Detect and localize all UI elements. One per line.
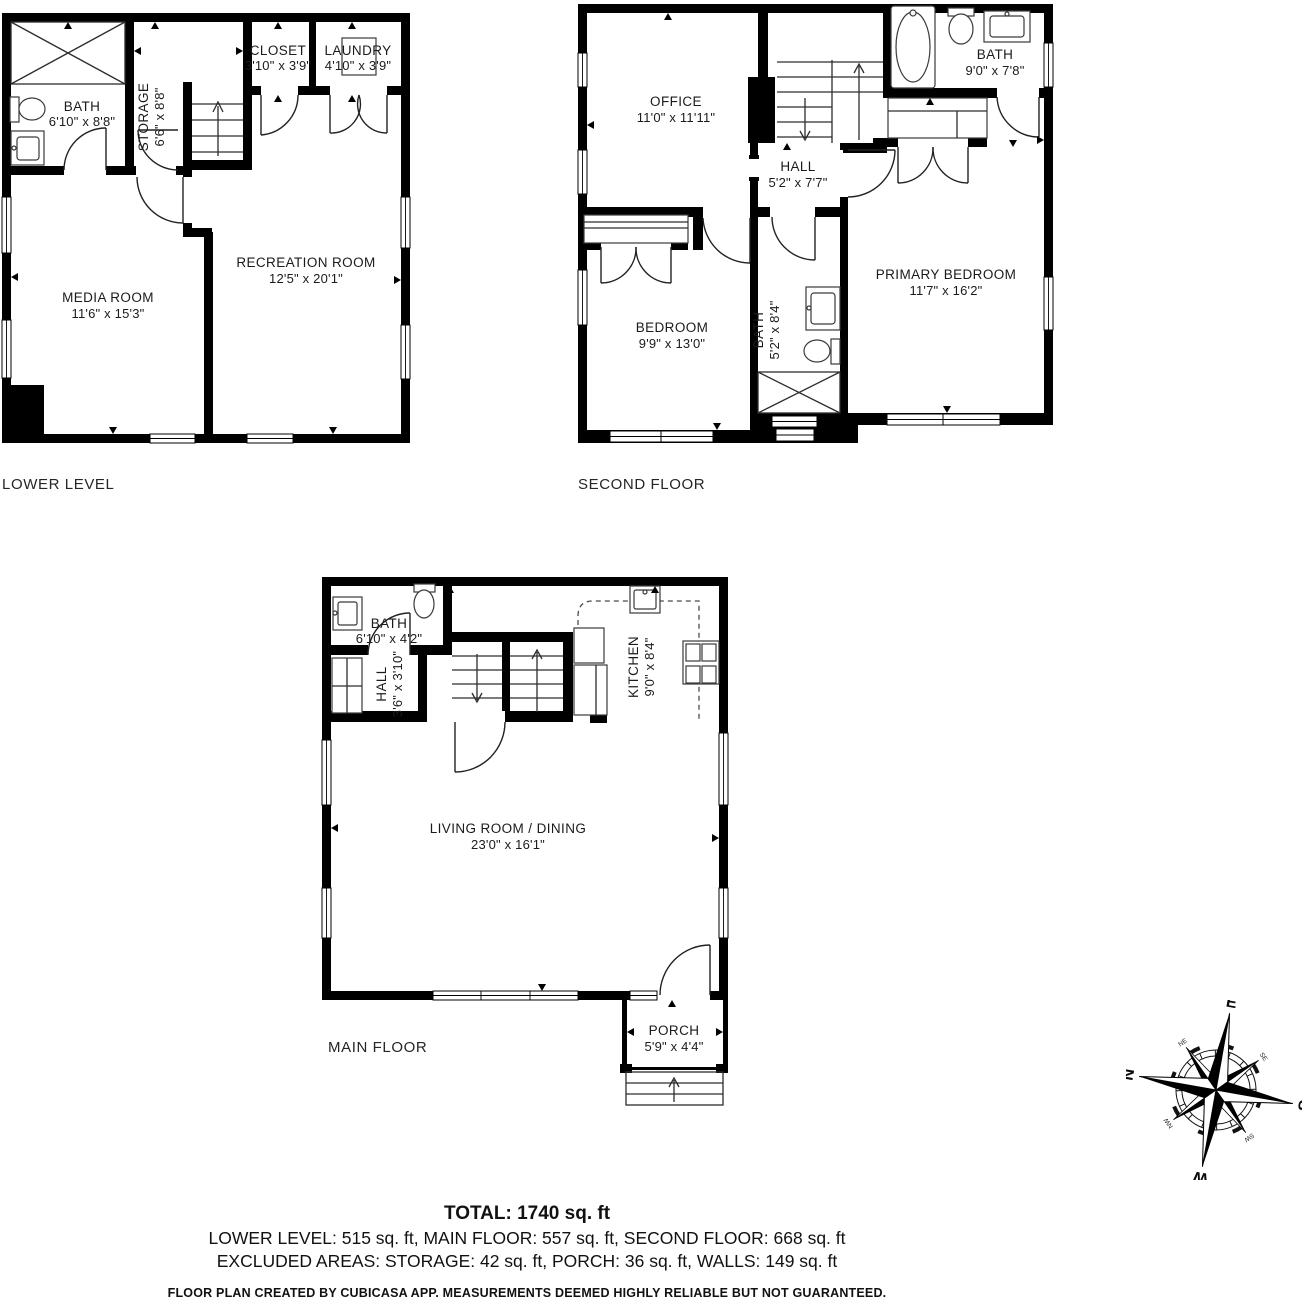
stairs-icon <box>777 60 883 143</box>
room-label-porch: PORCH <box>649 1023 700 1038</box>
porch-steps-icon <box>626 1072 723 1105</box>
floorplan-canvas: BATH 6'10" x 8'8" STORAGE 6'6" x 8'8" CL… <box>0 0 1302 1302</box>
room-dims-bath-main: 6'10" x 4'2" <box>356 631 423 646</box>
compass-s: S <box>1294 1099 1302 1113</box>
room-label-kitchen: KITCHEN <box>626 636 641 698</box>
lower-level-plan: BATH 6'10" x 8'8" STORAGE 6'6" x 8'8" CL… <box>0 8 414 450</box>
second-floor-plan: OFFICE 11'0" x 11'11" BATH 9'0" x 7'8" H… <box>574 0 1058 448</box>
room-label-bath-main: BATH <box>371 616 408 631</box>
closet-icon <box>332 658 362 713</box>
room-label-bath: BATH <box>64 99 101 114</box>
room-dims-bath-middle: 5'2" x 8'4" <box>767 300 782 359</box>
excluded-areas: EXCLUDED AREAS: STORAGE: 42 sq. ft, PORC… <box>0 1251 1054 1272</box>
shower-icon <box>11 22 125 84</box>
room-labels: BATH 6'10" x 8'8" STORAGE 6'6" x 8'8" CL… <box>49 43 392 321</box>
room-label-bath-upper: BATH <box>977 47 1014 62</box>
room-dims-primary: 11'7" x 16'2" <box>910 283 983 298</box>
room-label-hall: HALL <box>780 159 815 174</box>
room-label-office: OFFICE <box>650 94 702 109</box>
room-dims-hall: 5'2" x 7'7" <box>768 175 827 190</box>
room-dims-bedroom: 9'9" x 13'0" <box>639 336 706 351</box>
room-label-bath-middle: BATH <box>751 312 766 349</box>
compass-sw: SW <box>1242 1131 1255 1143</box>
floor-areas: LOWER LEVEL: 515 sq. ft, MAIN FLOOR: 557… <box>0 1228 1054 1249</box>
room-dims-kitchen: 9'0" x 8'4" <box>642 637 657 696</box>
room-dims-bath: 6'10" x 8'8" <box>49 114 116 129</box>
compass-points-cardinal <box>1126 1000 1302 1180</box>
room-label-living: LIVING ROOM / DINING <box>430 821 587 836</box>
compass-e: E <box>1225 1000 1239 1012</box>
room-labels: BATH 6'10" x 4'2" HALL 3'6" x 3'10" KITC… <box>356 616 704 1054</box>
room-dims-recreation: 12'5" x 20'1" <box>269 271 343 286</box>
room-dims-hall-main: 3'6" x 3'10" <box>390 651 405 718</box>
room-dims-porch: 5'9" x 4'4" <box>644 1039 703 1054</box>
room-label-bedroom: BEDROOM <box>636 320 709 335</box>
room-label-closet: CLOSET <box>250 43 306 58</box>
room-label-storage: STORAGE <box>136 83 151 152</box>
compass-n: N <box>1126 1067 1138 1081</box>
room-label-laundry: LAUNDRY <box>324 43 391 58</box>
room-label-media: MEDIA ROOM <box>62 290 154 305</box>
compass-w: W <box>1191 1167 1210 1180</box>
room-dims-storage: 6'6" x 8'8" <box>152 87 167 146</box>
main-floor-caption: MAIN FLOOR <box>328 1039 427 1056</box>
room-dims-media: 11'6" x 15'3" <box>72 306 145 321</box>
compass-nw: NW <box>1162 1116 1174 1130</box>
lower-level-caption: LOWER LEVEL <box>2 476 114 493</box>
room-dims-bath-upper: 9'0" x 7'8" <box>965 63 1024 78</box>
compass-se: SE <box>1258 1051 1269 1063</box>
room-label-hall-main: HALL <box>374 666 389 701</box>
compass-rose: N E S W NE SE SW NW <box>1126 1000 1302 1180</box>
room-dims-living: 23'0" x 16'1" <box>471 837 545 852</box>
second-floor-caption: SECOND FLOOR <box>578 476 705 493</box>
disclaimer: FLOOR PLAN CREATED BY CUBICASA APP. MEAS… <box>0 1286 1054 1300</box>
area-summary: TOTAL: 1740 sq. ft LOWER LEVEL: 515 sq. … <box>0 1203 1054 1272</box>
total-area: TOTAL: 1740 sq. ft <box>0 1203 1054 1225</box>
stairs-icon <box>192 102 243 156</box>
room-dims-closet: 3'10" x 3'9" <box>245 58 312 73</box>
room-label-recreation: RECREATION ROOM <box>236 255 375 270</box>
room-label-primary: PRIMARY BEDROOM <box>876 267 1017 282</box>
room-dims-laundry: 4'10" x 3'9" <box>325 58 392 73</box>
room-dims-office: 11'0" x 11'11" <box>637 110 716 125</box>
walls <box>2 13 410 443</box>
compass-ne: NE <box>1177 1037 1189 1048</box>
windows <box>322 733 728 1000</box>
main-floor-plan: BATH 6'10" x 4'2" HALL 3'6" x 3'10" KITC… <box>316 572 732 1112</box>
